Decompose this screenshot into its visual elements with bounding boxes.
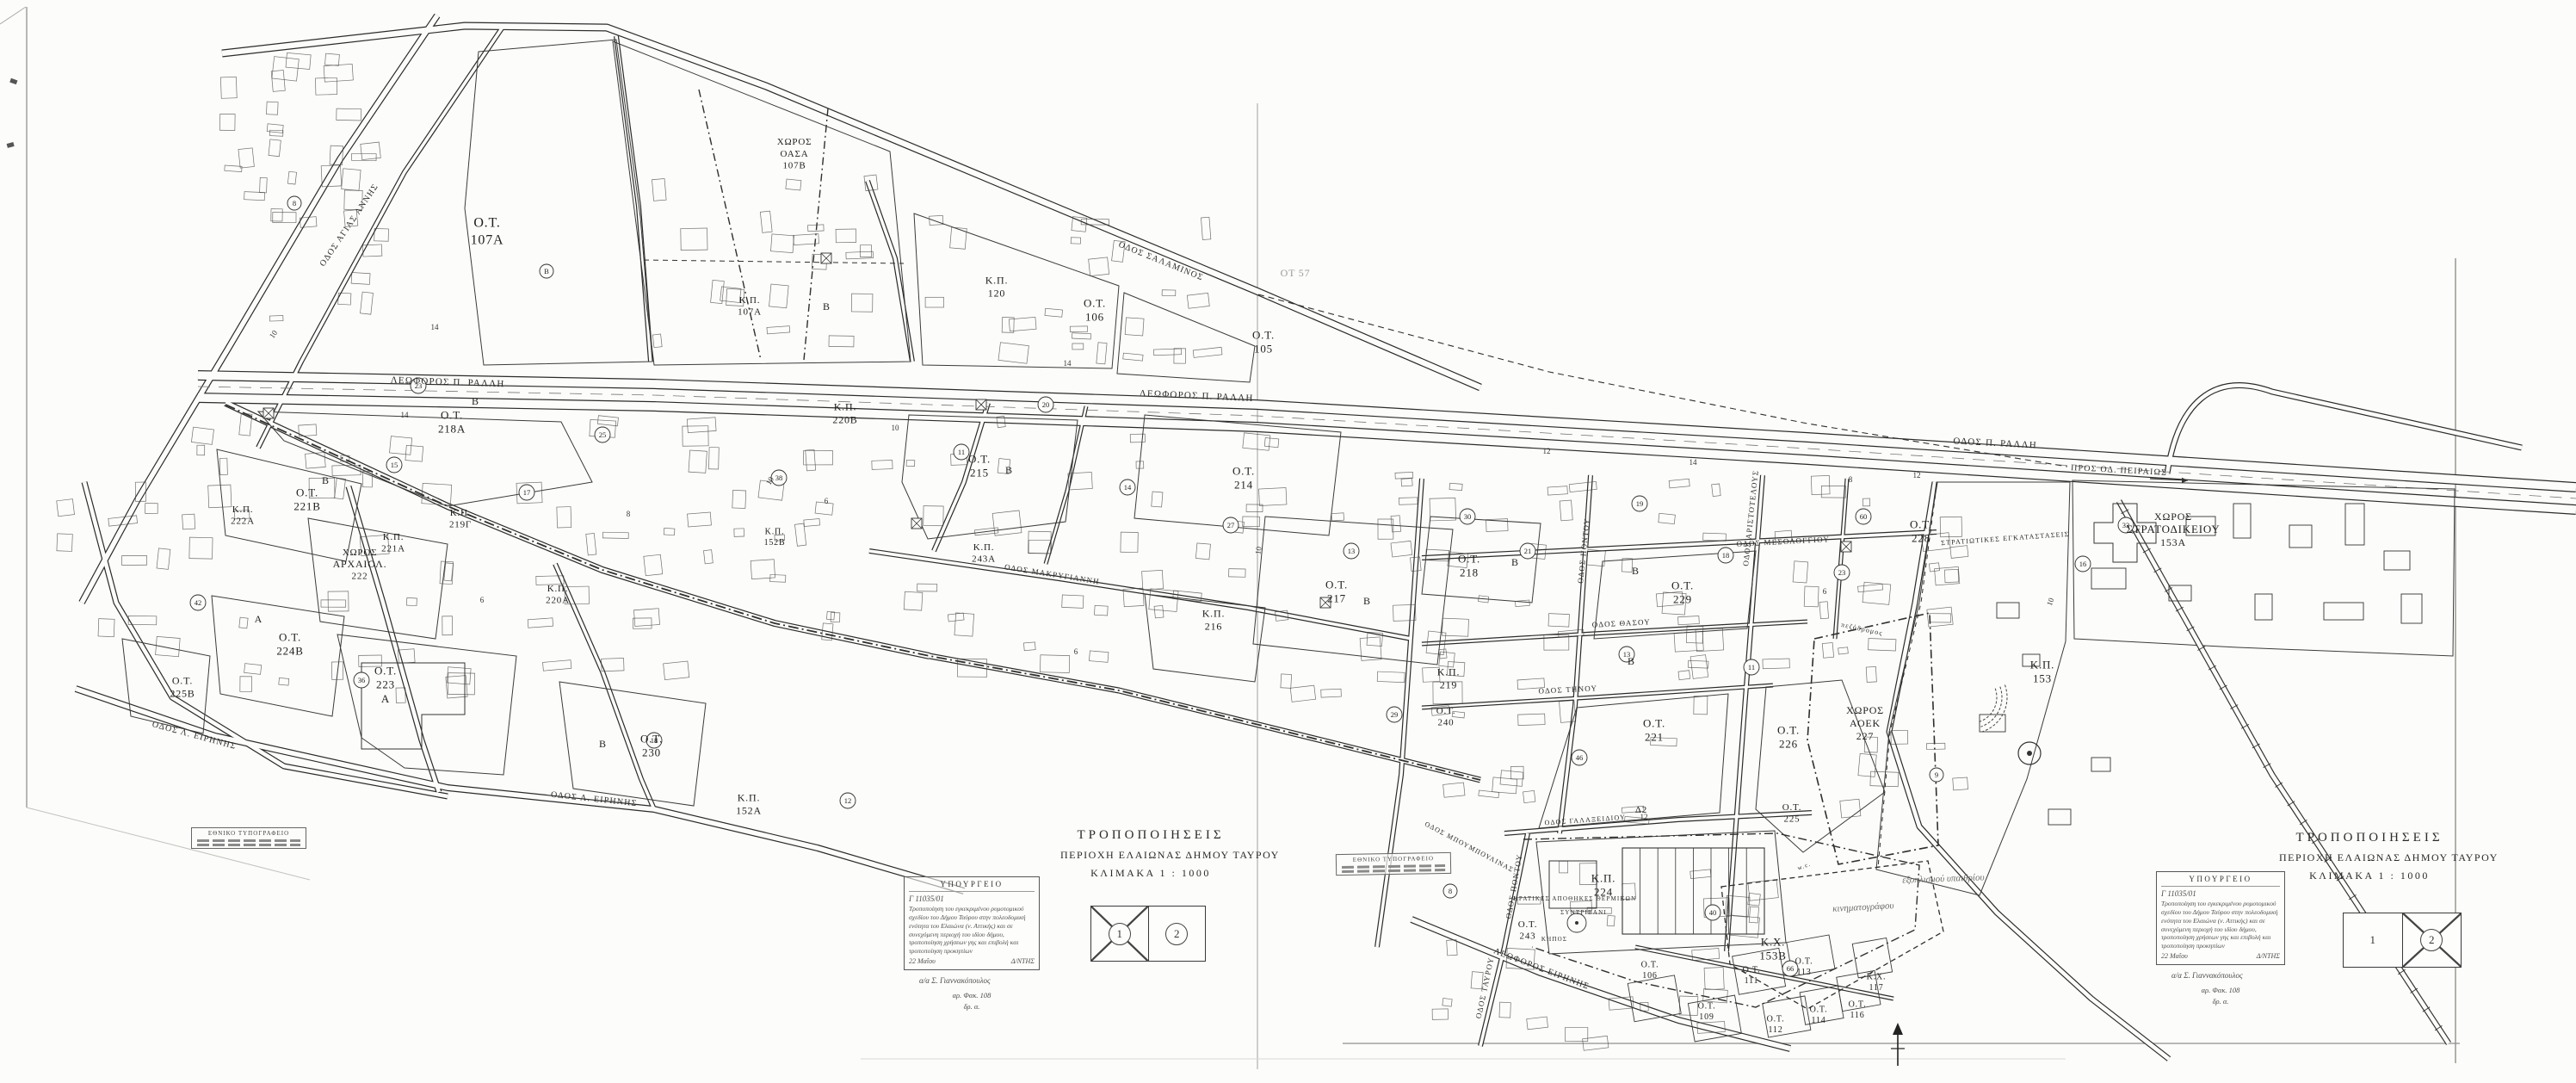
circled-marker-number: Β xyxy=(544,267,549,275)
circled-marker: 38 xyxy=(771,470,787,486)
block-label: 153Β xyxy=(1759,950,1786,962)
block-letter-label: Β xyxy=(1632,565,1639,577)
circled-marker: 16 xyxy=(2075,556,2091,572)
circled-marker: 15 xyxy=(386,457,402,473)
circled-marker: 21 xyxy=(1520,543,1535,559)
street-name-label: πεζόδρομος xyxy=(1840,621,1883,637)
street-name-label: ΟΔΟΣ ΑΓΙΑΣ ΑΝΝΗΣ xyxy=(318,182,381,268)
block-label: 225 xyxy=(1784,814,1801,825)
block-label: Ο.Τ. xyxy=(1849,999,1867,1009)
circled-marker-number: 60 xyxy=(1860,512,1868,521)
block-letter-label: Β xyxy=(1511,556,1518,568)
special-features xyxy=(361,501,2449,1066)
road-width-number: 14 xyxy=(431,323,440,331)
title-line-2: ΠΕΡΙΟΧΗ ΕΛΑΙΩΝΑΣ ΔΗΜΟΥ ΤΑΥΡΟΥ xyxy=(1060,849,1241,862)
block-label: Ο.Τ. xyxy=(1643,716,1665,729)
print-stamp-left: ΕΘΝΙΚΟ ΤΥΠΟΓΡΑΦΕΙΟ xyxy=(191,827,306,849)
ministry-date: 22 Μαΐου xyxy=(2161,952,2188,960)
block-letter-label: Β xyxy=(472,395,479,407)
block-label: 224Β xyxy=(276,645,303,658)
circled-marker-number: 17 xyxy=(523,488,531,497)
circled-marker: 23 xyxy=(1834,565,1850,580)
block-label: 214 xyxy=(1234,479,1253,492)
street-name-label: ΣΥΝΤΡΙΒΑΝΙ xyxy=(1560,909,1607,916)
block-label: 217 xyxy=(1327,592,1346,605)
road-width-number: 6 xyxy=(480,596,485,604)
circled-marker-number: 13 xyxy=(1348,547,1356,555)
block-label: Κ.Π. xyxy=(383,532,405,542)
circled-marker-number: 8 xyxy=(293,199,296,207)
block-label: 220Α xyxy=(546,596,570,606)
circled-marker-number: 11 xyxy=(958,448,965,456)
block-label: 228 xyxy=(1912,532,1930,545)
ministry-note: δρ. α. xyxy=(904,1002,1040,1011)
block-letter-label: Β xyxy=(1005,464,1012,476)
keymap-right: 1 2 xyxy=(2343,913,2462,968)
block-label: 216 xyxy=(1205,621,1222,633)
block-label: 112 xyxy=(1768,1025,1782,1035)
street-name-label: ΣΤΡΑΤΙΩΤΙΚΕΣ ΕΓΚΑΤΑΣΤΑΣΕΙΣ xyxy=(1941,530,2070,547)
circled-marker: 30 xyxy=(1460,509,1475,524)
block-label: Ο.Τ. xyxy=(968,452,991,465)
block-label: 223 xyxy=(376,678,395,691)
circled-marker: 40 xyxy=(1705,905,1720,920)
street-name-label: ΚΡΑΤΙΚΕΣ ΑΠΟΘΗΚΕΣ ΘΕΡΜΙΚΩΝ xyxy=(1514,895,1637,902)
circled-marker-number: 21 xyxy=(1524,547,1532,555)
title-block-left: ΤΡΟΠΟΠΟΙΗΣΕΙΣ ΠΕΡΙΟΧΗ ΕΛΑΙΩΝΑΣ ΔΗΜΟΥ ΤΑΥ… xyxy=(1060,828,1241,880)
road-width-number: 6 xyxy=(1823,587,1827,596)
keymap-sheet1-number: 1 xyxy=(1109,923,1131,945)
block-label: ΑΡΧΑΙΟΛ. xyxy=(333,558,387,570)
block-label: 226 xyxy=(1779,738,1798,751)
print-stamp-smalltext xyxy=(197,839,300,842)
keymap-right-sheet1: 1 xyxy=(2344,913,2403,967)
circled-marker-number: 36 xyxy=(358,676,366,684)
circled-marker-number: 19 xyxy=(1636,499,1644,508)
block-label: 215 xyxy=(970,467,989,480)
ministry-file: αρ. Φακ. 108 xyxy=(904,991,1040,999)
block-label: 224 xyxy=(1594,886,1613,899)
circled-marker: 14 xyxy=(1120,480,1135,495)
print-stamp-header: ΕΘΝΙΚΟ ΤΥΠΟΓΡΑΦΕΙΟ xyxy=(195,830,302,837)
circled-marker: 42 xyxy=(190,595,206,610)
block-label: Κ.Π. xyxy=(973,542,995,553)
road-width-number: 10 xyxy=(268,328,280,340)
title-line-3: ΚΛΙΜΑΚΑ 1 : 1000 xyxy=(1060,867,1241,880)
street-name-label: ΚΗΠΟΣ xyxy=(1541,936,1567,943)
circled-marker-number: 16 xyxy=(2079,560,2087,568)
block-label: Ο.Τ. xyxy=(1232,464,1255,477)
keymap-sheet2-number: 2 xyxy=(2420,929,2443,951)
block-label: 221Β xyxy=(293,500,320,513)
circled-marker-number: 29 xyxy=(1391,710,1399,719)
block-label: 109 xyxy=(1699,1012,1714,1022)
ministry-role: Δ/ΝΤΗΣ xyxy=(1011,957,1035,965)
block-label: Ο.Τ. xyxy=(1810,1005,1828,1014)
block-label: Ο.Τ. xyxy=(1641,960,1659,969)
block-label: 107Α xyxy=(738,307,762,318)
keymap-left-sheet1: 1 xyxy=(1091,907,1149,961)
block-letter-label: Β xyxy=(322,474,329,486)
block-label: ΧΩΡΟΣ xyxy=(1846,704,1884,716)
circled-marker-number: 42 xyxy=(195,598,202,607)
circled-marker: Β xyxy=(540,264,553,278)
circled-marker: 36 xyxy=(354,672,369,688)
block-label: Κ.Π. xyxy=(738,792,761,804)
circled-marker: 29 xyxy=(1387,707,1402,722)
block-label: 243Α xyxy=(972,554,996,565)
block-label: Κ.Π. xyxy=(1437,666,1461,678)
circled-marker-number: 20 xyxy=(1042,400,1050,409)
block-letter-label: Α xyxy=(255,613,263,625)
road-width-number: 10 xyxy=(1253,546,1263,555)
ministry-ref: Γ 11035/01 xyxy=(909,894,1035,903)
block-label: Κ.Π. xyxy=(985,275,1009,287)
circled-marker: 13 xyxy=(1344,543,1359,559)
circled-marker: 20 xyxy=(1038,397,1053,412)
block-label: Ο.Τ. xyxy=(279,630,301,643)
ministry-stamp-box: ΥΠΟΥΡΓΕΙΟ Γ 11035/01 Τροποποίηση του εγκ… xyxy=(2156,871,2285,965)
circled-marker-number: 15 xyxy=(391,461,398,469)
block-label: Ο.Τ. xyxy=(1743,965,1761,975)
crossed-box-symbol xyxy=(911,518,922,529)
keymap-sheet2-number: 2 xyxy=(1165,923,1188,945)
crossed-box-symbol xyxy=(976,399,986,410)
ministry-stamp-right: ΥΠΟΥΡΓΕΙΟ Γ 11035/01 Τροποποίηση του εγκ… xyxy=(2156,871,2285,1006)
road-width-number: 6 xyxy=(825,497,829,505)
block-label: Κ.Π. xyxy=(765,527,785,536)
block-label: 222Α xyxy=(231,517,255,527)
circled-marker: 19 xyxy=(1632,496,1647,511)
circled-marker: 8 xyxy=(1443,884,1457,898)
ministry-date: 22 Μαΐου xyxy=(909,957,936,965)
block-label: Ο.Τ. xyxy=(640,732,663,745)
block-label: 107Β xyxy=(782,161,806,171)
block-label: 227 xyxy=(1856,730,1874,742)
block-label: Ο.Τ. xyxy=(374,664,397,677)
road-width-number: 12 xyxy=(1543,447,1551,455)
circled-marker: 9 xyxy=(1930,768,1943,782)
road-width-number: 8 xyxy=(627,510,631,518)
road-width-number: 12 xyxy=(1913,471,1921,480)
print-stamp-header: ΕΘΝΙΚΟ ΤΥΠΟΓΡΑΦΕΙΟ xyxy=(1340,855,1447,863)
block-label: 221Α xyxy=(381,544,405,554)
block-label: ΣΤΡΑΤΟΔΙΚΕΙΟΥ xyxy=(2126,523,2220,535)
block-label: Ο.Τ. xyxy=(1252,328,1275,341)
ministry-ref: Γ 11035/01 xyxy=(2161,889,2280,898)
block-label: Κ.Π. xyxy=(2030,658,2054,671)
block-label: 117 xyxy=(1869,983,1883,993)
block-label: Κ.Π. xyxy=(1591,871,1615,884)
block-label: 229 xyxy=(1673,593,1692,606)
print-stamp-smalltext xyxy=(197,844,300,846)
circled-marker-number: 8 xyxy=(1449,887,1452,895)
ministry-body: Τροποποίηση του εγκεκριμένου ρυμοτομικού… xyxy=(909,905,1035,956)
road-width-number: 10 xyxy=(2045,597,2056,607)
keymap-left: 1 2 xyxy=(1090,906,1206,962)
ministry-body: Τροποποίηση του εγκεκριμένου ρυμοτομικού… xyxy=(2161,900,2280,950)
block-label: 106 xyxy=(1642,971,1657,981)
block-label: Κ.Π. xyxy=(1202,608,1226,620)
block-letter-label: Β xyxy=(599,738,606,750)
street-name-label: ΟΔΟΣ ΤΗΝΟΥ xyxy=(1538,684,1597,696)
title-line-1: ΤΡΟΠΟΠΟΙΗΣΕΙΣ xyxy=(2279,831,2460,845)
circled-marker-number: 40 xyxy=(1709,908,1717,917)
road-width-number: 12 xyxy=(1640,813,1648,821)
block-label: Κ.Χ. xyxy=(1867,972,1887,981)
circled-marker: 18 xyxy=(1718,548,1733,563)
block-label: Ο.Τ. xyxy=(1795,956,1813,966)
circled-marker: 25 xyxy=(595,427,610,442)
title-line-2: ΠΕΡΙΟΧΗ ΕΛΑΙΩΝΑΣ ΔΗΜΟΥ ΤΑΥΡΟΥ xyxy=(2279,851,2460,864)
block-label: 152Α xyxy=(736,805,762,817)
block-label: ΟΤ 57 xyxy=(1281,267,1311,279)
block-label: 120 xyxy=(988,288,1005,300)
block-label: Ο.Τ. xyxy=(1782,802,1802,813)
block-label: 243 xyxy=(1520,931,1536,942)
labels: ΛΕΩΦΟΡΟΣ Π. ΡΑΛΛΗΛΕΩΦΟΡΟΣ Π. ΡΑΛΛΗΟΔΟΣ Π… xyxy=(151,137,2220,1035)
block-label: 116 xyxy=(1850,1011,1864,1020)
circled-marker-number: 14 xyxy=(1124,483,1132,492)
road-width-number: 14 xyxy=(1064,359,1072,368)
block-label: 222 xyxy=(352,572,368,582)
block-label: Κ.Χ. xyxy=(1761,935,1785,948)
block-label: Ο.Τ. xyxy=(1325,578,1348,591)
block-outlines xyxy=(122,40,2455,1060)
ministry-signer: α/α Σ. Γιαννακόπουλος xyxy=(919,976,1040,985)
circled-marker: 12 xyxy=(840,793,856,808)
block-label: 105 xyxy=(1254,343,1273,356)
print-stamp-smalltext xyxy=(1342,869,1445,873)
block-label: Ο.Τ. xyxy=(1671,579,1694,591)
block-label: ΟΑΣΑ xyxy=(781,149,809,159)
street-name-label: w.c. xyxy=(1796,861,1812,872)
block-label: 152Β xyxy=(764,538,786,548)
block-label: 111 xyxy=(1745,976,1759,986)
ministry-stamp-left: ΥΠΟΥΡΓΕΙΟ Γ 11035/01 Τροποποίηση του εγκ… xyxy=(904,876,1040,1011)
block-label: 113 xyxy=(1796,968,1811,977)
block-label: Ο.Τ. xyxy=(172,675,193,687)
block-label: Ο.Τ. xyxy=(1518,919,1538,930)
block-label: 153Α xyxy=(2160,536,2186,548)
block-label: Ο.Τ. xyxy=(1084,296,1106,309)
block-label: Κ.Π. xyxy=(834,401,857,413)
block-label: ΧΩΡΟΣ xyxy=(2154,511,2192,523)
print-stamp-smalltext xyxy=(1342,863,1445,868)
circled-marker-number: 12 xyxy=(844,796,852,805)
circled-marker-number: 25 xyxy=(599,430,607,439)
circled-marker: 11 xyxy=(1744,659,1759,675)
block-label: Ο.Τ. xyxy=(1767,1014,1785,1024)
ministry-header: ΥΠΟΥΡΓΕΙΟ xyxy=(2161,875,2280,883)
road-width-number: 10 xyxy=(892,424,900,432)
block-letter-label: Β xyxy=(1628,655,1634,667)
block-label: Κ.Π. xyxy=(547,584,569,594)
circled-marker-number: 18 xyxy=(1722,551,1730,560)
block-label: 219Γ xyxy=(449,520,472,530)
block-label: ΧΩΡΟΣ xyxy=(777,137,812,147)
keymap-left-sheet2: 2 xyxy=(1149,907,1206,961)
block-label: Α xyxy=(381,692,390,705)
road-width-number: 14 xyxy=(401,411,410,419)
circled-marker-number: 11 xyxy=(1748,663,1755,671)
ministry-file: αρ. Φακ. 108 xyxy=(2156,986,2285,994)
title-line-3: ΚΛΙΜΑΚΑ 1 : 1000 xyxy=(2279,869,2460,882)
block-label: ΑΟΕΚ xyxy=(1850,717,1881,729)
block-label: 219 xyxy=(1440,679,1457,691)
circled-marker-number: 23 xyxy=(1838,568,1846,577)
block-letter-label: Β xyxy=(1363,595,1370,607)
block-label: Ο.Τ. xyxy=(473,216,500,231)
block-label: 218 xyxy=(1460,566,1479,579)
crossed-box-symbol xyxy=(263,408,274,418)
crossed-box-symbol xyxy=(1841,541,1851,552)
road-width-number: 14 xyxy=(1690,458,1698,467)
block-label: Ο.Τ. xyxy=(1910,517,1932,530)
block-label: 221 xyxy=(1645,731,1664,744)
street-name-label: ΟΔΟΣ ΘΑΣΟΥ xyxy=(1592,617,1652,629)
keymap-right-sheet2: 2 xyxy=(2403,913,2462,967)
block-label: Κ.Π. xyxy=(232,504,254,515)
block-label: Κ.Π. xyxy=(450,508,472,518)
block-label: 106 xyxy=(1085,311,1104,324)
block-label: 230 xyxy=(642,746,661,759)
circled-marker-number: 30 xyxy=(1464,512,1472,521)
block-label: Ο.Τ. xyxy=(296,486,318,498)
block-label: Ο.Τ. xyxy=(1698,1001,1716,1011)
ministry-role: Δ/ΝΤΗΣ xyxy=(2257,952,2280,960)
stamp-rule xyxy=(2161,886,2280,887)
block-letter-label: Β xyxy=(823,300,830,313)
scanned-map-page: 8231517253811142713301918231311469406016… xyxy=(0,0,2576,1083)
handwritten-note: κινηματογράφου xyxy=(1832,900,1894,914)
circled-marker-number: 38 xyxy=(775,473,783,482)
ministry-signer: α/α Σ. Γιαννακόπουλος xyxy=(2171,971,2285,980)
circled-marker-number: 66 xyxy=(1787,964,1795,973)
block-label: Ο.Τ. xyxy=(1777,723,1800,736)
block-label: 220Β xyxy=(832,414,857,426)
circled-marker-number: 9 xyxy=(1935,770,1938,779)
keymap-sheet1-number: 1 xyxy=(2363,930,2383,950)
ministry-stamp-box: ΥΠΟΥΡΓΕΙΟ Γ 11035/01 Τροποποίηση του εγκ… xyxy=(904,876,1040,970)
ministry-header: ΥΠΟΥΡΓΕΙΟ xyxy=(909,880,1035,888)
circled-marker: 8 xyxy=(287,196,301,210)
block-label: 107Α xyxy=(471,233,504,248)
block-label: Ο.Τ. xyxy=(1458,552,1480,565)
circled-marker: 60 xyxy=(1856,509,1871,524)
circled-marker-number: 46 xyxy=(1576,753,1584,762)
title-line-1: ΤΡΟΠΟΠΟΙΗΣΕΙΣ xyxy=(1060,828,1241,843)
circled-marker: 17 xyxy=(519,485,534,500)
street-name-label: ΛΕΩΦΟΡΟΣ ΕΙΡΗΝΗΣ xyxy=(1492,946,1591,992)
circled-marker: 11 xyxy=(954,444,969,460)
road-width-number: 8 xyxy=(1849,475,1853,484)
road-width-number: 6 xyxy=(1074,647,1078,656)
block-label: Κ.Π. xyxy=(739,295,761,306)
circled-marker: 46 xyxy=(1572,750,1587,765)
block-label: Ο.Τ. xyxy=(441,408,463,421)
circled-marker: 27 xyxy=(1223,517,1239,533)
sheet-edges xyxy=(0,7,2460,1069)
block-label: 218Α xyxy=(438,423,466,436)
stamp-rule xyxy=(909,891,1035,892)
circled-marker-number: 27 xyxy=(1227,521,1235,529)
crossed-box-symbol xyxy=(821,253,831,263)
block-label: 225Β xyxy=(170,688,195,700)
title-block-right: ΤΡΟΠΟΠΟΙΗΣΕΙΣ ΠΕΡΙΟΧΗ ΕΛΑΙΩΝΑΣ ΔΗΜΟΥ ΤΑΥ… xyxy=(2279,831,2460,882)
ministry-note: δρ. α. xyxy=(2156,997,2285,1006)
block-label: 153 xyxy=(2033,672,2052,685)
print-stamp-right: ΕΘΝΙΚΟ ΤΥΠΟΓΡΑΦΕΙΟ xyxy=(1336,852,1451,876)
block-label: 240 xyxy=(1438,718,1455,728)
block-label: 114 xyxy=(1811,1016,1825,1025)
block-label: Ο.Τ. xyxy=(1436,706,1456,716)
block-label: ΧΩΡΟΣ xyxy=(343,548,378,558)
